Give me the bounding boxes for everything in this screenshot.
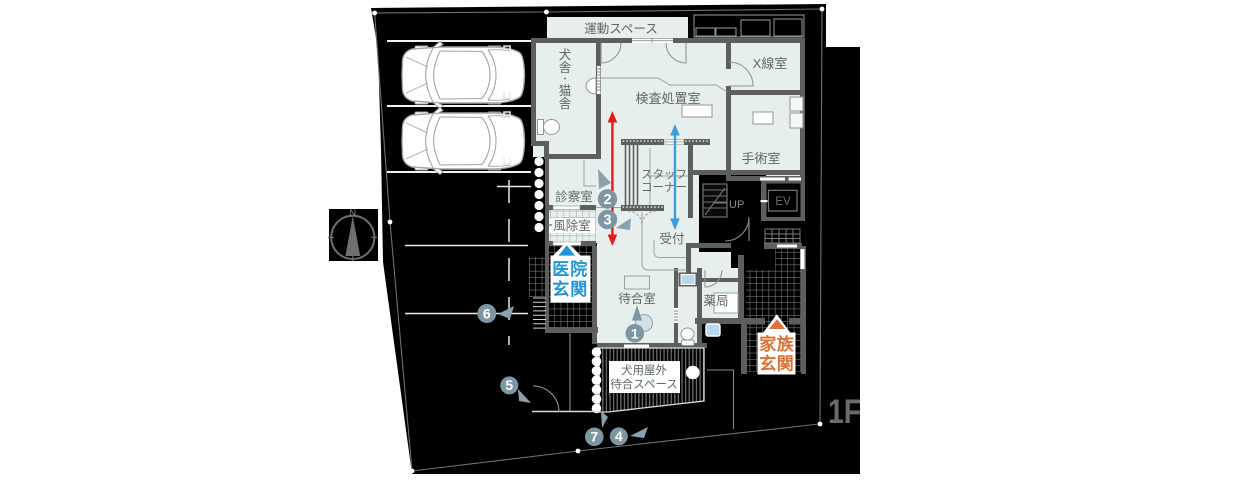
svg-text:玄関: 玄関 <box>552 279 588 299</box>
svg-text:2: 2 <box>603 192 611 208</box>
svg-text:・: ・ <box>560 74 569 84</box>
svg-text:UP: UP <box>729 199 744 211</box>
svg-text:5: 5 <box>505 377 513 393</box>
svg-text:N: N <box>350 208 357 218</box>
svg-text:手術室: 手術室 <box>741 151 780 166</box>
svg-text:舎: 舎 <box>559 61 572 75</box>
svg-text:医院: 医院 <box>552 259 588 279</box>
svg-text:診察室: 診察室 <box>555 189 593 204</box>
svg-text:4: 4 <box>615 428 623 444</box>
svg-text:受付: 受付 <box>659 232 684 246</box>
svg-text:EV: EV <box>775 196 791 208</box>
svg-text:1: 1 <box>631 325 639 341</box>
svg-text:検査処置室: 検査処置室 <box>635 91 700 106</box>
svg-text:家族: 家族 <box>759 334 794 354</box>
svg-text:運動スペース: 運動スペース <box>584 22 658 36</box>
svg-text:6: 6 <box>483 306 491 322</box>
svg-text:1F: 1F <box>828 393 861 431</box>
svg-text:X線室: X線室 <box>753 56 788 71</box>
svg-text:猫: 猫 <box>559 84 572 98</box>
svg-text:犬用屋外: 犬用屋外 <box>621 363 667 377</box>
svg-text:薬局: 薬局 <box>703 294 728 308</box>
svg-text:スタッフ: スタッフ <box>641 168 687 181</box>
svg-text:舎: 舎 <box>559 97 572 111</box>
svg-text:待合室: 待合室 <box>618 291 656 306</box>
svg-text:犬: 犬 <box>559 48 572 62</box>
svg-text:3: 3 <box>603 213 611 229</box>
svg-text:待合スペース: 待合スペース <box>610 377 678 391</box>
svg-text:コーナー: コーナー <box>641 181 687 194</box>
svg-text:玄関: 玄関 <box>759 354 794 374</box>
svg-text:7: 7 <box>590 429 598 445</box>
svg-text:風除室: 風除室 <box>553 218 591 233</box>
